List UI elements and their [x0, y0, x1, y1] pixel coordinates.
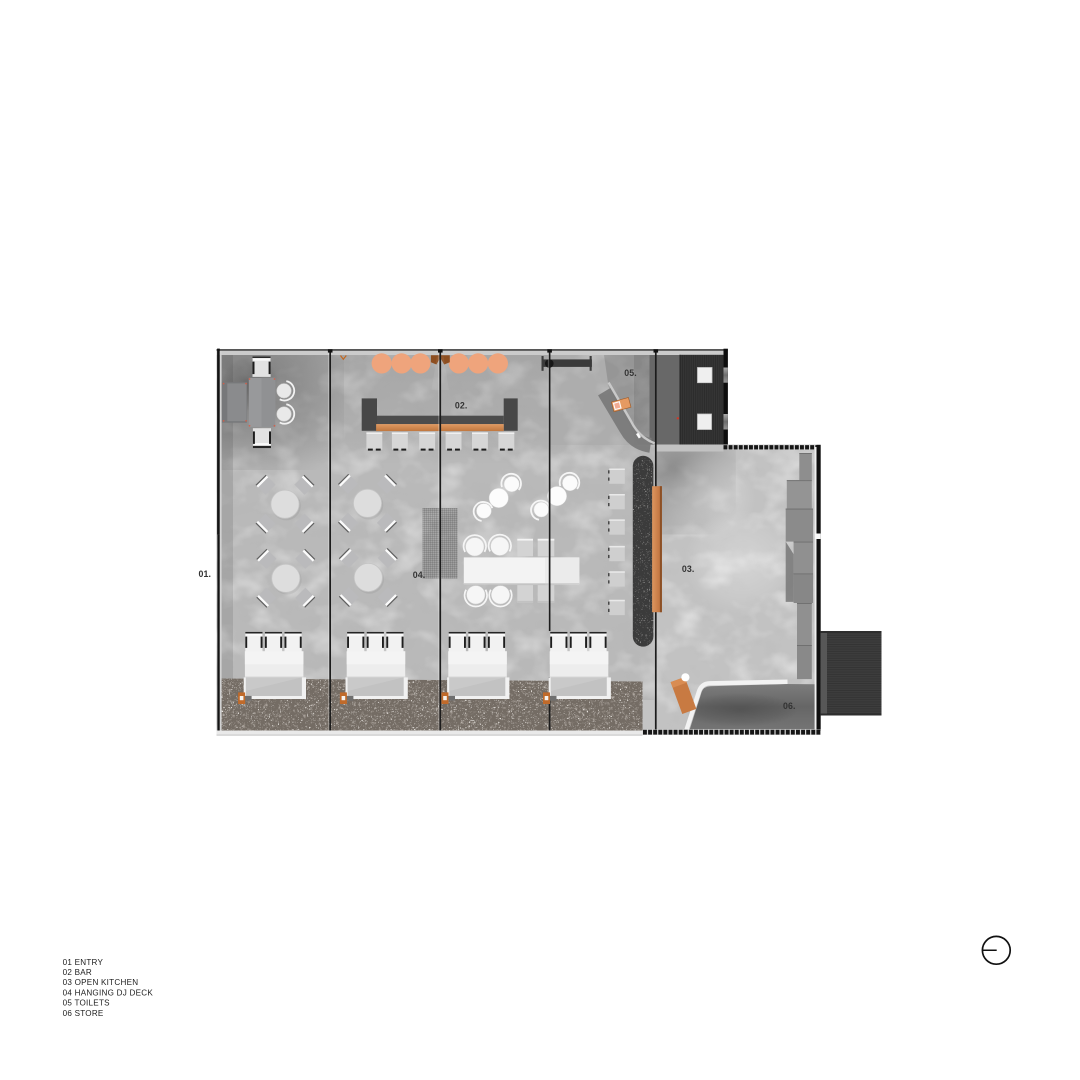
svg-text:02 BAR: 02 BAR — [63, 968, 92, 977]
svg-text:01.: 01. — [199, 569, 212, 579]
svg-text:02.: 02. — [455, 401, 468, 411]
svg-text:01 ENTRY: 01 ENTRY — [63, 958, 104, 967]
svg-text:05 TOILETS: 05 TOILETS — [63, 999, 111, 1008]
svg-text:03 OPEN KITCHEN: 03 OPEN KITCHEN — [63, 978, 139, 987]
svg-text:06.: 06. — [783, 701, 796, 711]
svg-text:05.: 05. — [624, 368, 637, 378]
svg-text:04 HANGING DJ DECK: 04 HANGING DJ DECK — [63, 988, 154, 997]
svg-text:04.: 04. — [413, 570, 426, 580]
svg-text:06 STORE: 06 STORE — [63, 1009, 104, 1018]
svg-text:03.: 03. — [682, 564, 695, 574]
